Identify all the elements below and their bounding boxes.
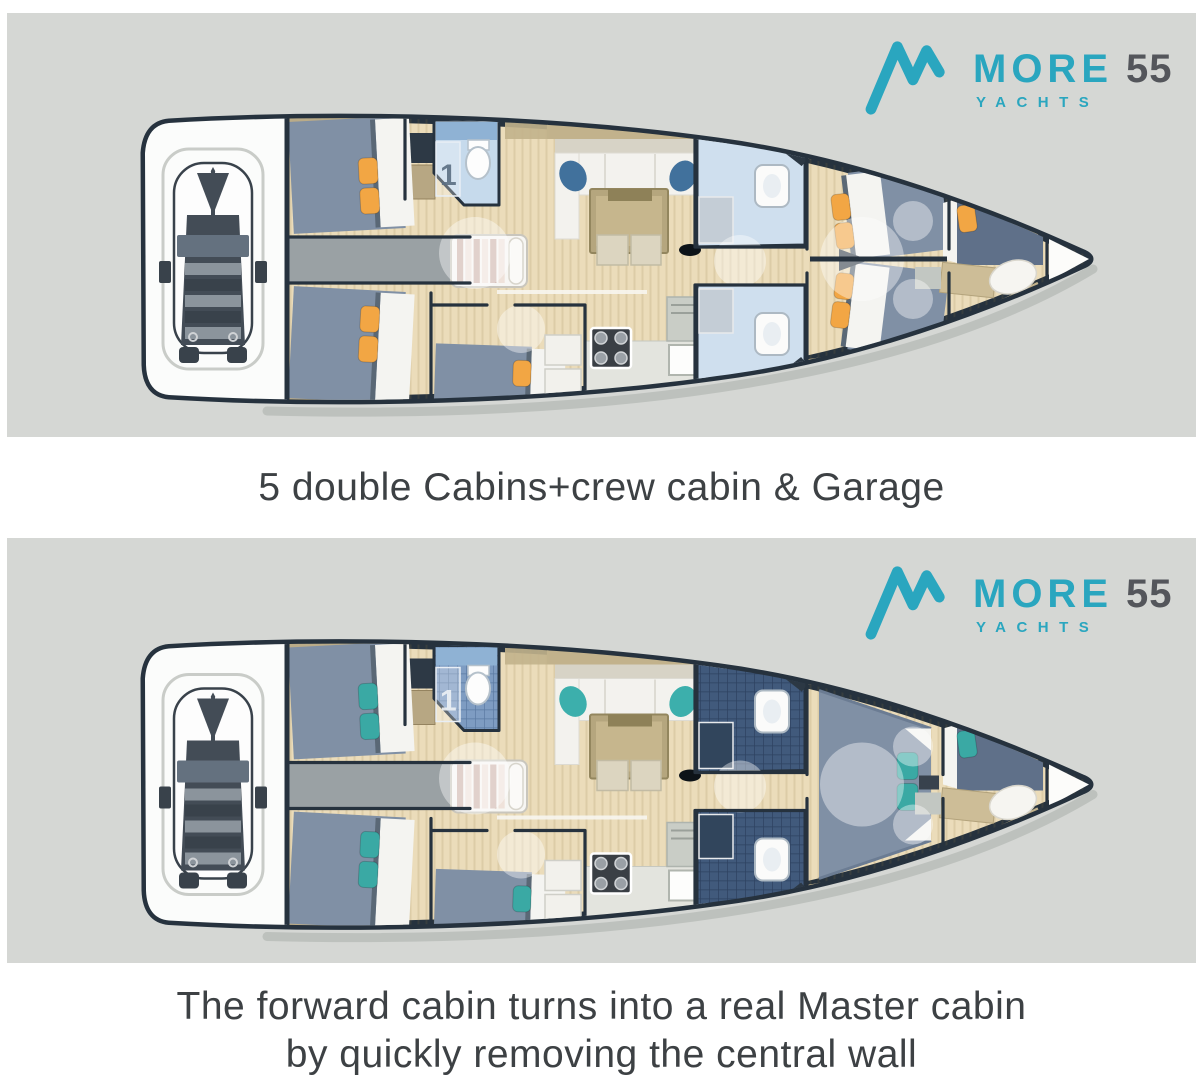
caption-2-line-1: The forward cabin turns into a real Mast… — [0, 983, 1203, 1031]
dinghy — [159, 163, 267, 363]
aft-cabin-bed-starboard — [288, 812, 415, 930]
floorplan-panel-1: 1 MORE 55 YACHTS — [7, 13, 1196, 437]
logo-brand: MORE — [973, 49, 1113, 89]
page: 1 MORE 55 YACHTS 5 double Cabins+crew ca… — [0, 13, 1203, 1079]
garage — [139, 633, 287, 945]
head-midship-port: 1 — [434, 120, 499, 205]
aft-cabin-bed-port — [288, 116, 415, 234]
logo-mark-icon — [863, 560, 959, 642]
brand-logo: MORE 55 YACHTS — [863, 35, 1173, 117]
logo-model: 55 — [1126, 49, 1173, 89]
aft-cabin-bed-port — [288, 641, 415, 759]
logo-text: MORE 55 YACHTS — [973, 35, 1173, 110]
stove — [591, 328, 631, 368]
dinghy — [159, 689, 267, 889]
caption-2-line-2: by quickly removing the central wall — [0, 1031, 1203, 1079]
logo-brand: MORE — [973, 574, 1113, 614]
logo-subtitle: YACHTS — [976, 95, 1173, 110]
caption-1-text: 5 double Cabins+crew cabin & Garage — [258, 466, 944, 510]
floorplan-panel-2: 1 MORE 55 YACHTS — [7, 538, 1196, 963]
caption-2: The forward cabin turns into a real Mast… — [0, 963, 1203, 1079]
head-number-label: 1 — [440, 159, 457, 192]
stove — [591, 854, 631, 894]
logo-text: MORE 55 YACHTS — [973, 560, 1173, 635]
aft-cabin-bed-starboard — [288, 286, 415, 404]
head-number-label: 1 — [440, 685, 457, 718]
caption-1: 5 double Cabins+crew cabin & Garage — [0, 437, 1203, 538]
garage — [139, 107, 287, 419]
logo-model: 55 — [1126, 574, 1173, 614]
brand-logo: MORE 55 YACHTS — [863, 560, 1173, 642]
logo-subtitle: YACHTS — [976, 620, 1173, 635]
head-midship-port: 1 — [434, 646, 499, 731]
logo-mark-icon — [863, 35, 959, 117]
